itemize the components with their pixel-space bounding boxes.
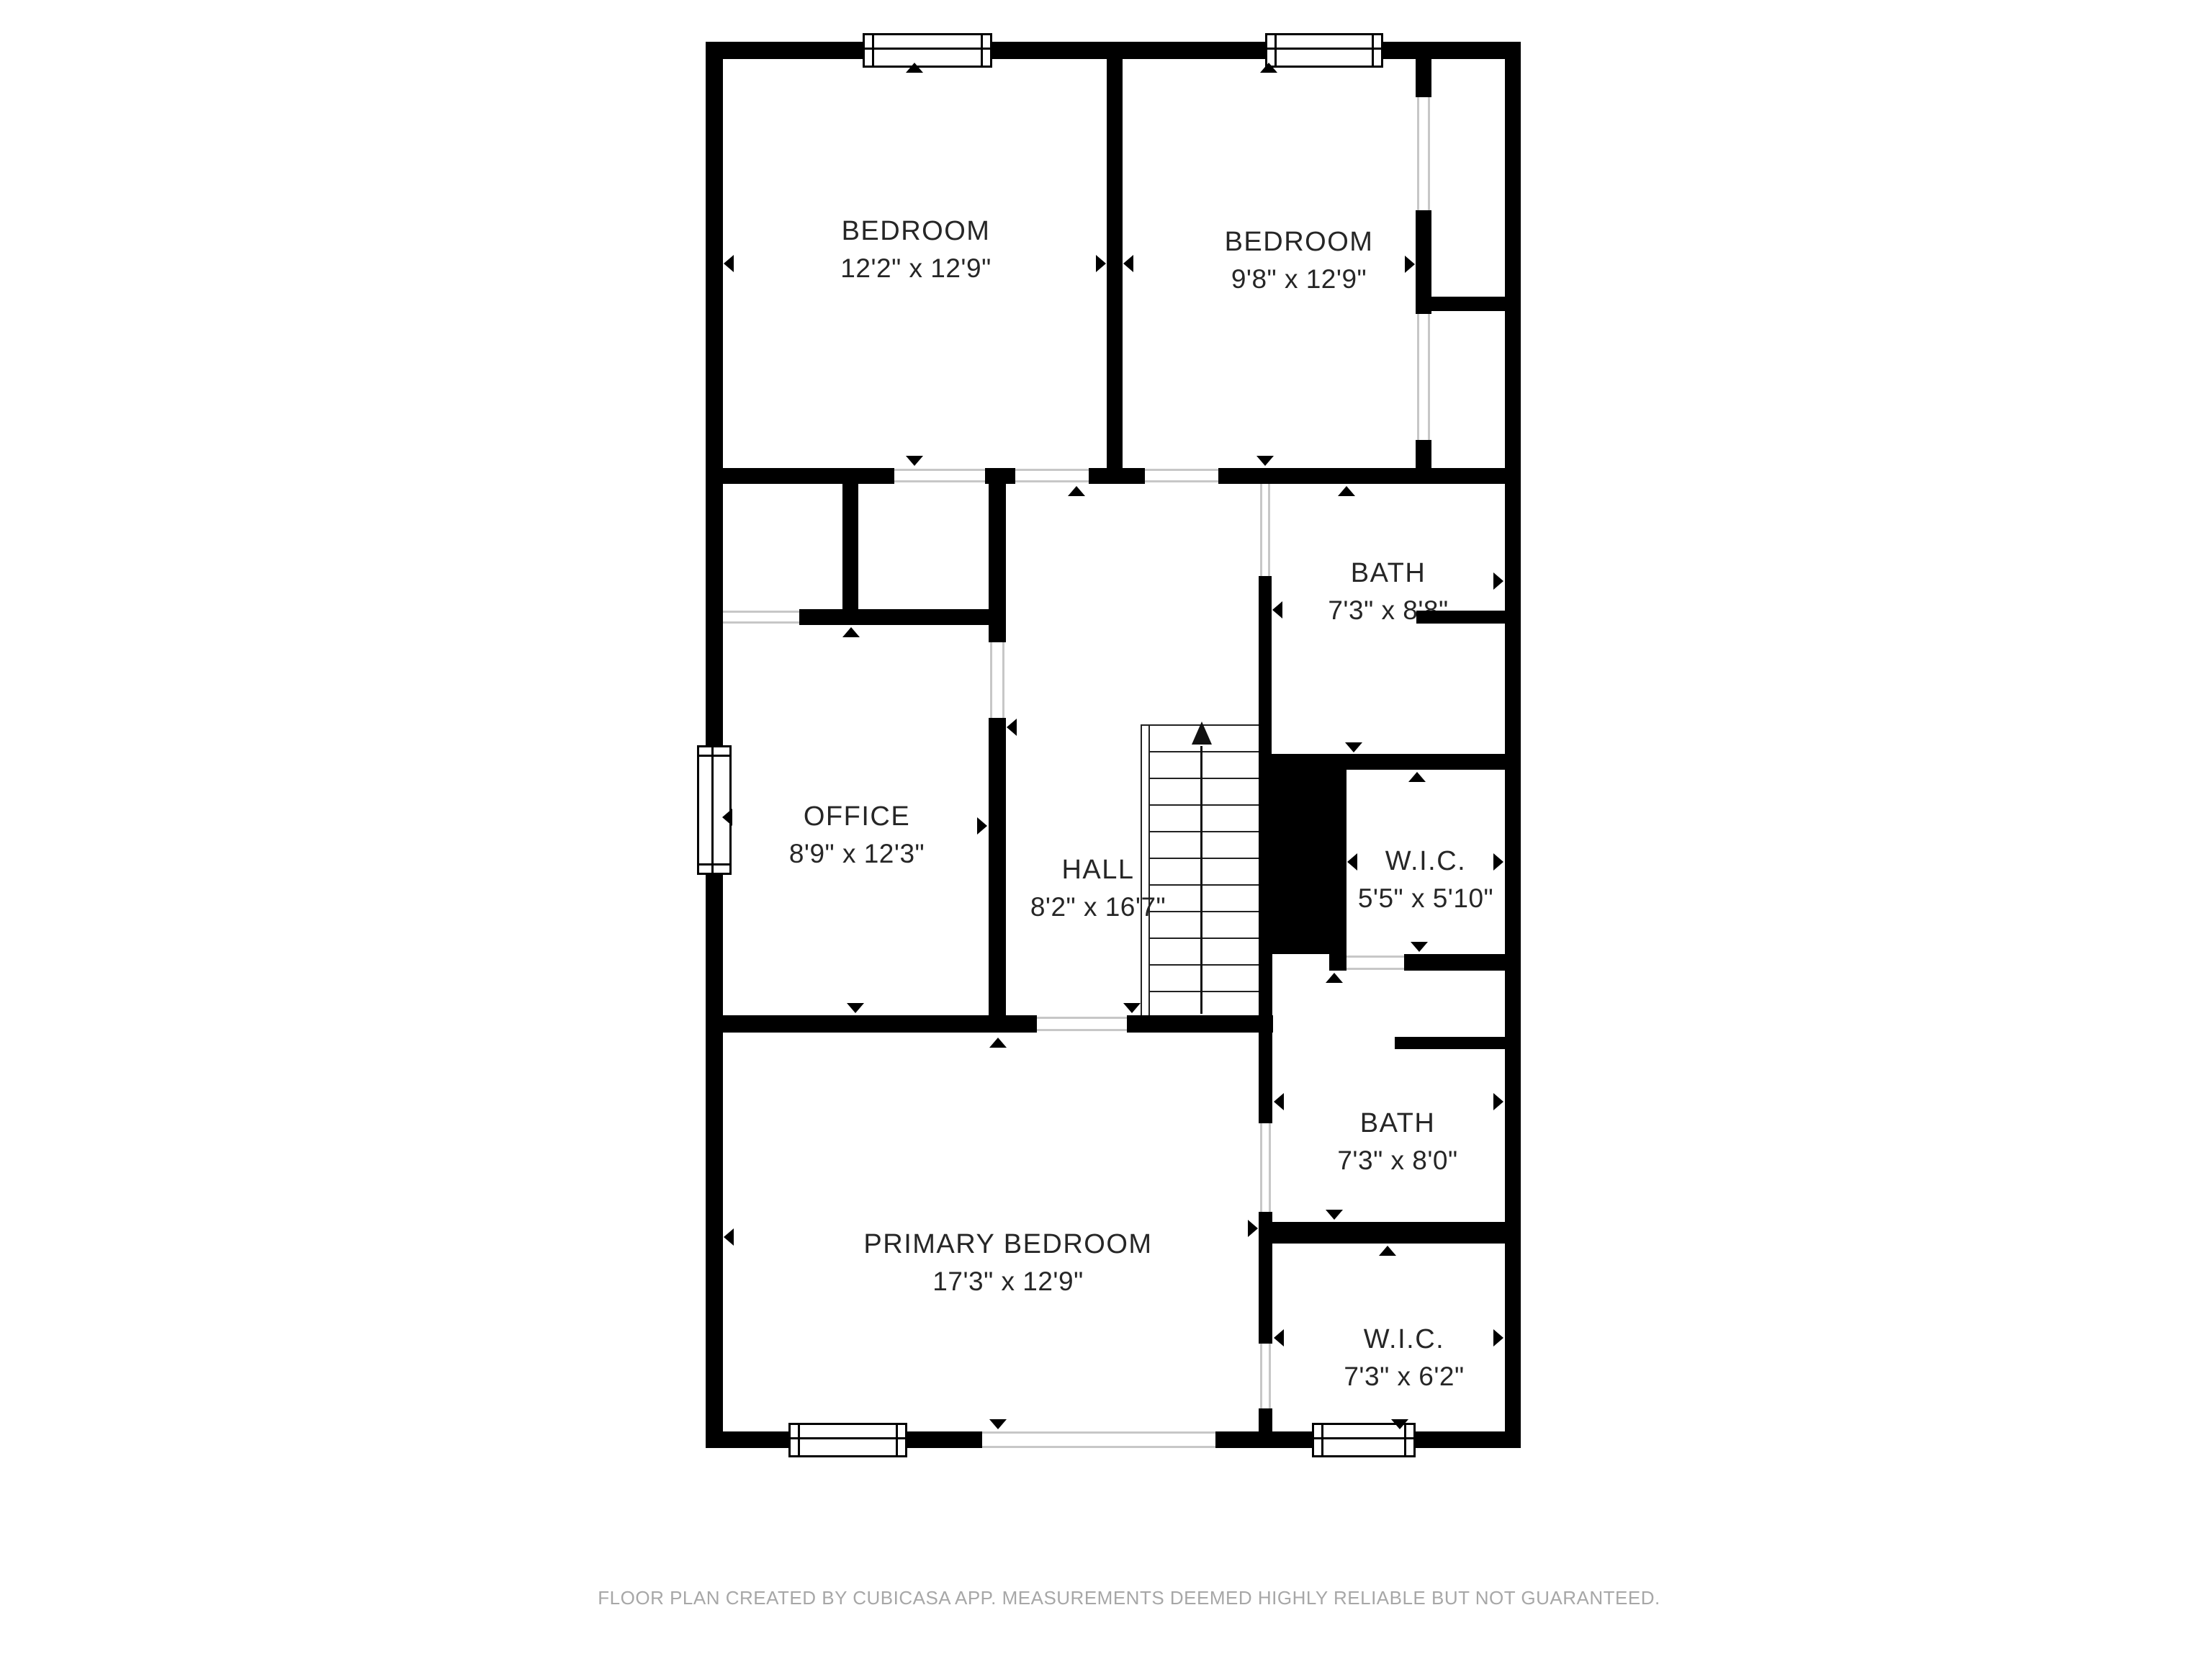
room-label-bedroom-2: BEDROOM 9'8" x 12'9"	[1225, 225, 1374, 296]
room-name: BEDROOM	[840, 215, 991, 248]
door-opening-line	[1428, 314, 1430, 440]
measure-arrow-down	[989, 1419, 1007, 1429]
stairs-treads	[1150, 724, 1259, 1018]
room-dimensions: 12'2" x 12'9"	[840, 252, 991, 285]
measure-arrow-down	[1326, 1210, 1343, 1220]
measure-arrow-left	[1274, 1329, 1284, 1346]
door-opening-line	[1269, 1123, 1271, 1212]
measure-arrow-up	[1379, 1246, 1396, 1256]
door-opening-line	[1269, 1344, 1271, 1408]
door-opening-line	[1417, 314, 1419, 440]
measure-arrow-up	[906, 63, 923, 73]
door-opening-line	[990, 642, 992, 718]
door-opening-line	[1015, 469, 1089, 471]
floor-plan: BEDROOM 12'2" x 12'9" BEDROOM 9'8" x 12'…	[0, 0, 2212, 1659]
wall	[706, 42, 1521, 59]
measure-arrow-right	[1493, 1093, 1503, 1110]
room-dimensions: 8'9" x 12'3"	[789, 837, 925, 871]
window	[863, 33, 992, 68]
measure-arrow-up	[1326, 973, 1343, 983]
measure-arrow-right	[1405, 256, 1415, 273]
measure-arrow-down	[1391, 1419, 1408, 1429]
room-label-bedroom-1: BEDROOM 12'2" x 12'9"	[840, 215, 991, 285]
room-label-primary-bedroom: PRIMARY BEDROOM 17'3" x 12'9"	[863, 1228, 1152, 1298]
room-name: BEDROOM	[1225, 225, 1374, 258]
measure-arrow-down	[906, 456, 923, 466]
wall	[1259, 954, 1272, 1024]
measure-arrow-right	[1493, 1329, 1503, 1346]
door-opening-line	[1417, 97, 1419, 210]
door-opening-line	[894, 480, 985, 482]
room-dimensions: 9'8" x 12'9"	[1225, 263, 1374, 296]
wall	[1127, 1015, 1273, 1033]
room-name: W.I.C.	[1344, 1323, 1464, 1356]
wall	[1404, 954, 1521, 971]
door-opening-line	[1268, 484, 1270, 576]
measure-arrow-up	[842, 627, 860, 637]
measure-arrow-down	[847, 1003, 864, 1013]
measure-arrow-left	[722, 809, 732, 826]
door-opening-line	[723, 611, 799, 613]
measure-arrow-down	[1123, 1003, 1141, 1013]
measure-arrow-left	[724, 255, 734, 272]
wall	[985, 468, 1015, 484]
wall	[1259, 1222, 1521, 1244]
wall	[799, 609, 1006, 625]
room-label-bath-lower: BATH 7'3" x 8'0"	[1337, 1107, 1457, 1177]
wall	[1259, 1024, 1272, 1123]
wall	[1218, 468, 1521, 484]
measure-arrow-left	[1272, 601, 1282, 619]
wall	[1259, 1244, 1272, 1344]
stairs-rail	[1141, 724, 1150, 1018]
door-opening-line	[1037, 1029, 1127, 1031]
room-label-office: OFFICE 8'9" x 12'3"	[789, 800, 925, 871]
measure-arrow-down	[1256, 456, 1274, 466]
stairs-direction-arrow-head	[1192, 721, 1212, 745]
room-name: PRIMARY BEDROOM	[863, 1228, 1152, 1261]
measure-arrow-right	[1493, 853, 1503, 871]
door-opening-line	[1260, 1123, 1262, 1212]
door-opening-line	[982, 1431, 1215, 1434]
measure-arrow-left	[1274, 1093, 1284, 1110]
door-opening-line	[1002, 642, 1004, 718]
measure-arrow-left	[1123, 255, 1133, 272]
measure-arrow-up	[1408, 772, 1426, 782]
stairs-direction-arrow	[1200, 746, 1202, 1014]
measure-arrow-right	[1493, 572, 1503, 590]
window	[788, 1423, 907, 1457]
room-name: BATH	[1337, 1107, 1457, 1140]
room-label-wic-lower: W.I.C. 7'3" x 6'2"	[1344, 1323, 1464, 1393]
door-opening-line	[982, 1446, 1215, 1448]
wall	[1329, 770, 1346, 971]
door-opening-line	[1260, 1344, 1262, 1408]
room-dimensions: 17'3" x 12'9"	[863, 1265, 1152, 1298]
wall	[1416, 297, 1505, 311]
measure-arrow-left	[1007, 719, 1017, 736]
wall	[842, 484, 858, 609]
door-opening-line	[1428, 97, 1430, 210]
door-opening-line	[1145, 469, 1218, 471]
measure-arrow-left	[1347, 853, 1357, 871]
wall	[1259, 1212, 1272, 1244]
wall	[1416, 59, 1431, 97]
door-opening-line	[723, 621, 799, 624]
measure-arrow-down	[1411, 942, 1428, 952]
wall	[1416, 440, 1431, 484]
wall	[1259, 1408, 1272, 1431]
wall	[706, 468, 894, 484]
footer-disclaimer: FLOOR PLAN CREATED BY CUBICASA APP. MEAS…	[598, 1587, 1660, 1609]
door-opening-line	[1346, 968, 1404, 970]
measure-arrow-right	[977, 817, 987, 835]
measure-arrow-down	[1345, 742, 1362, 752]
measure-arrow-right	[1096, 255, 1106, 272]
door-opening-line	[1145, 480, 1218, 482]
floor-plan-page: BEDROOM 12'2" x 12'9" BEDROOM 9'8" x 12'…	[0, 0, 2212, 1659]
wall	[706, 1015, 1037, 1033]
room-label-wic-upper: W.I.C. 5'5" x 5'10"	[1358, 845, 1493, 915]
measure-arrow-left	[724, 1228, 734, 1246]
measure-arrow-up	[1068, 486, 1085, 496]
room-dimensions: 7'3" x 6'2"	[1344, 1360, 1464, 1393]
room-name: OFFICE	[789, 800, 925, 833]
wall	[989, 718, 1006, 1033]
door-opening-line	[1037, 1017, 1127, 1019]
door-opening-line	[1346, 956, 1404, 958]
measure-arrow-right	[1248, 1220, 1258, 1237]
measure-arrow-up	[989, 1038, 1007, 1048]
door-opening-line	[1260, 484, 1262, 576]
door-opening-line	[894, 469, 985, 471]
door-opening-line	[1015, 480, 1089, 482]
measure-arrow-up	[1338, 486, 1355, 496]
wall	[1395, 1037, 1505, 1049]
wall	[1107, 59, 1123, 484]
wall	[1416, 611, 1505, 624]
wall	[1259, 770, 1329, 954]
room-dimensions: 7'3" x 8'0"	[1337, 1144, 1457, 1177]
room-dimensions: 5'5" x 5'10"	[1358, 882, 1493, 915]
wall	[1259, 754, 1521, 770]
wall	[1259, 576, 1272, 754]
window	[1265, 33, 1383, 68]
room-name: BATH	[1328, 557, 1448, 590]
room-name: W.I.C.	[1358, 845, 1493, 878]
wall	[989, 484, 1006, 642]
measure-arrow-up	[1260, 63, 1277, 73]
